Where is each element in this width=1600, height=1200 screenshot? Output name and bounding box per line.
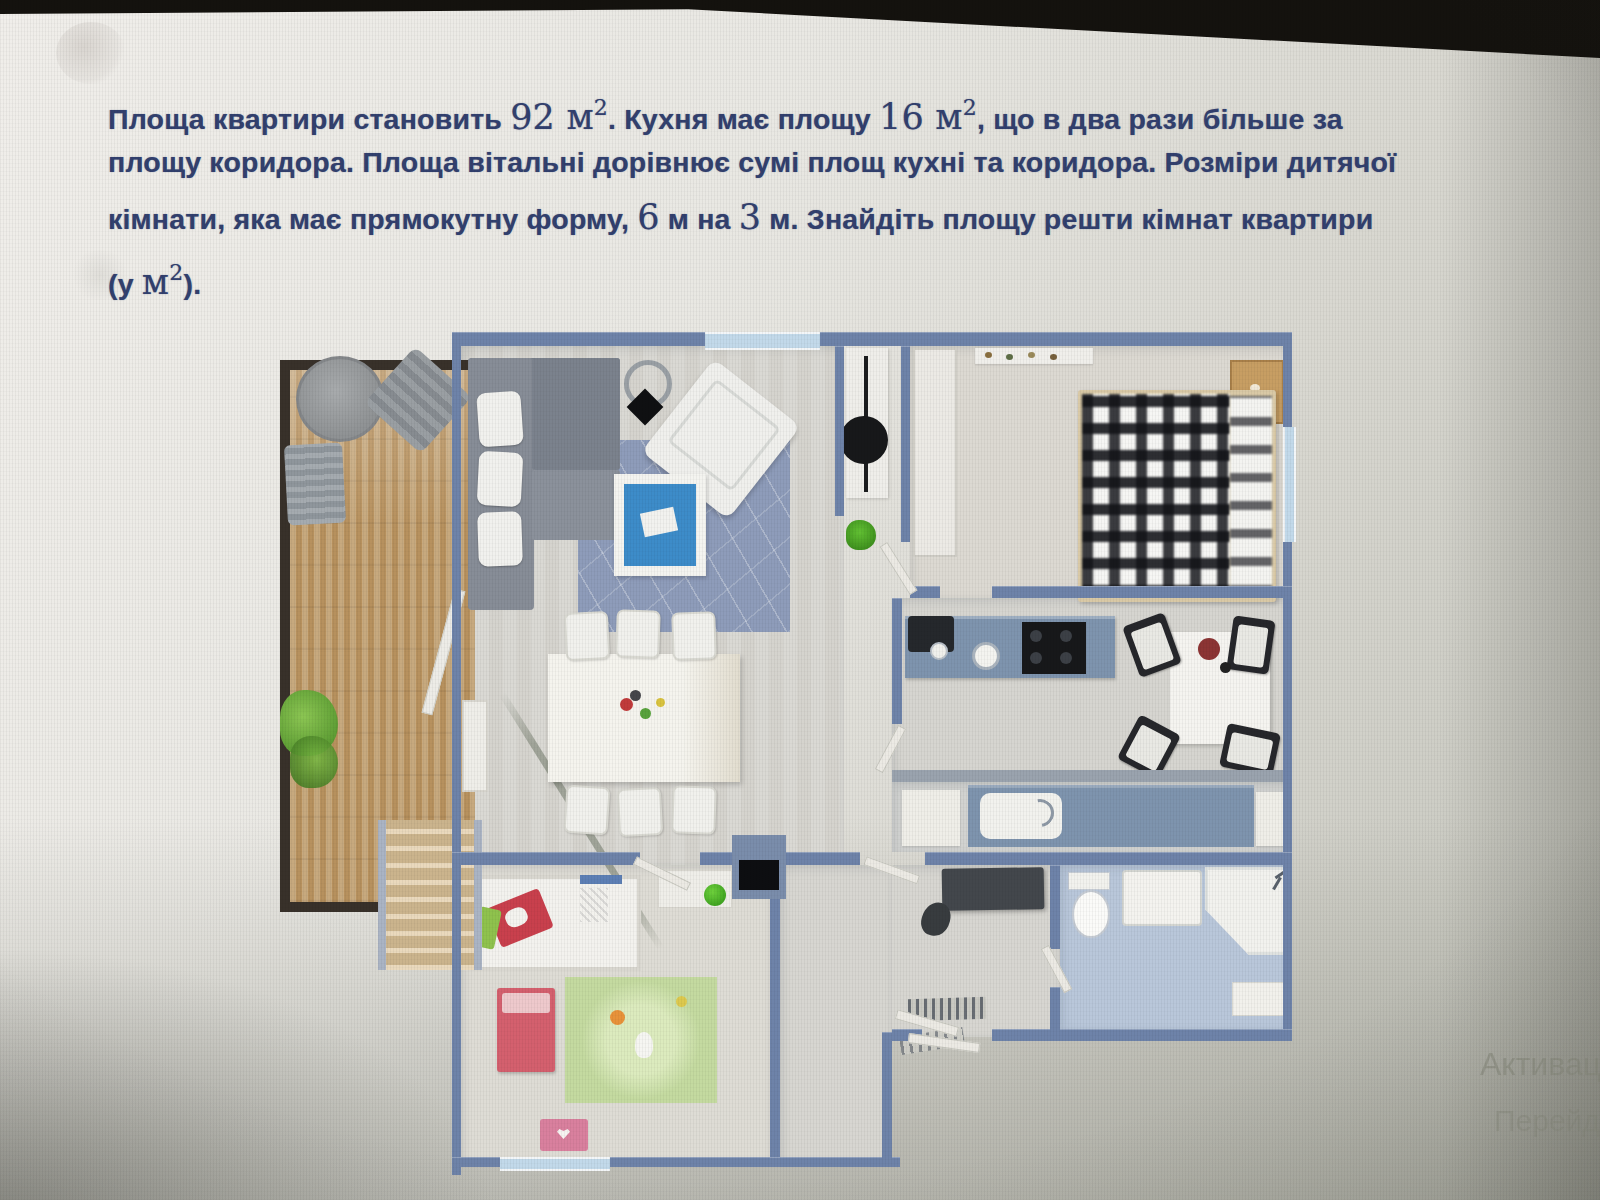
dining-chair	[564, 611, 610, 661]
rug-toy	[610, 1010, 625, 1025]
sofa-cushion	[477, 511, 523, 567]
problem-line: Площа квартири становить 92 м2. Кухня ма…	[108, 80, 1508, 135]
table-decor	[630, 690, 641, 701]
hall-floor-lower	[780, 865, 892, 1167]
rug-toy	[635, 1032, 653, 1058]
black-chair	[840, 416, 888, 464]
kitchen-sink	[972, 642, 1000, 670]
sofa-chaise	[532, 358, 620, 470]
children-window	[500, 1157, 610, 1171]
coffee-maker	[908, 616, 954, 652]
screen-bezel-top	[0, 0, 1600, 58]
red-bowl	[1198, 638, 1220, 660]
shelf-clutter	[1050, 354, 1057, 360]
bedroom-window	[1283, 427, 1296, 542]
sofa-cushion	[477, 451, 524, 507]
sofa-seat	[532, 470, 620, 540]
wall-main-horizontal	[925, 852, 1292, 865]
shelf-clutter	[985, 352, 992, 358]
vanity-sink	[980, 793, 1062, 839]
problem-line: кімнати, яка має прямокутну форму, 6 м н…	[108, 190, 1508, 245]
nook-plant	[846, 520, 876, 550]
wall-children-bottom	[610, 1157, 780, 1167]
crib-detail	[580, 875, 622, 884]
wall-kitchen-bottom	[892, 770, 1283, 782]
bed-plaid-blanket	[1082, 394, 1230, 596]
floor-plan-image	[280, 332, 1300, 1175]
table-decor	[640, 708, 651, 719]
wall-bathroom-left	[1050, 865, 1060, 949]
green-ball-toy	[704, 884, 726, 906]
toilet-tank	[1068, 872, 1110, 890]
washing-machine	[1122, 870, 1202, 926]
photographed-screen: { "problem": { "lines": [ [ {"t":"Площа …	[0, 0, 1600, 1200]
bookcase	[462, 700, 488, 792]
problem-line: (у м2).	[108, 245, 1508, 300]
wall-living-right	[835, 346, 844, 516]
toilet	[1072, 890, 1110, 938]
shelf-clutter	[1006, 354, 1013, 360]
activation-watermark: Активаці	[1480, 1046, 1600, 1083]
pink-toybox	[540, 1119, 588, 1151]
wall-children-right	[770, 865, 780, 1167]
wall-bathroom-left	[1050, 987, 1060, 1041]
wall-hall-bottom	[770, 1157, 900, 1167]
dining-chair	[617, 787, 663, 837]
wall-bedroom-left	[901, 346, 910, 542]
cooktop	[1022, 622, 1086, 674]
wardrobe	[913, 348, 957, 557]
drawing	[580, 888, 608, 922]
wall-bathroom-bottom	[1060, 1029, 1292, 1041]
tv-screen	[739, 860, 779, 890]
bed-pillows	[1230, 396, 1272, 594]
dining-chair	[615, 609, 661, 659]
faint-logo-circle	[56, 22, 126, 84]
shelf-clutter	[1028, 352, 1035, 358]
wall-main-horizontal	[452, 852, 640, 865]
children-bed-pillow	[502, 993, 550, 1013]
activation-watermark: Перейд	[1494, 1104, 1600, 1138]
table-item	[1220, 662, 1231, 673]
bathroom-cabinet	[1232, 982, 1286, 1016]
dining-chair	[671, 611, 717, 661]
dining-chair	[563, 785, 610, 836]
problem-text: Площа квартири становить 92 м2. Кухня ма…	[108, 80, 1508, 300]
rug-toy	[676, 996, 687, 1007]
hall-bench	[942, 867, 1045, 911]
wall-kitchen-left	[892, 598, 902, 724]
wall-hall-step	[882, 1032, 892, 1167]
wall-left	[452, 332, 461, 1175]
table-decor	[656, 698, 665, 707]
living-window	[705, 332, 820, 350]
wall-bedroom-bottom	[992, 586, 1292, 598]
wall-children-bottom	[452, 1157, 500, 1167]
sofa-cushion	[476, 391, 524, 448]
balcony-plant	[290, 736, 338, 788]
balcony-ottoman	[284, 443, 346, 526]
table-decor	[620, 698, 633, 711]
wall-top-right	[844, 332, 1292, 346]
problem-line: площу коридора. Площа вітальні дорівнює …	[108, 135, 1508, 190]
dining-chair	[671, 785, 717, 835]
staircase	[378, 820, 482, 970]
mat	[902, 790, 960, 846]
kitchen-chair	[1226, 615, 1275, 674]
